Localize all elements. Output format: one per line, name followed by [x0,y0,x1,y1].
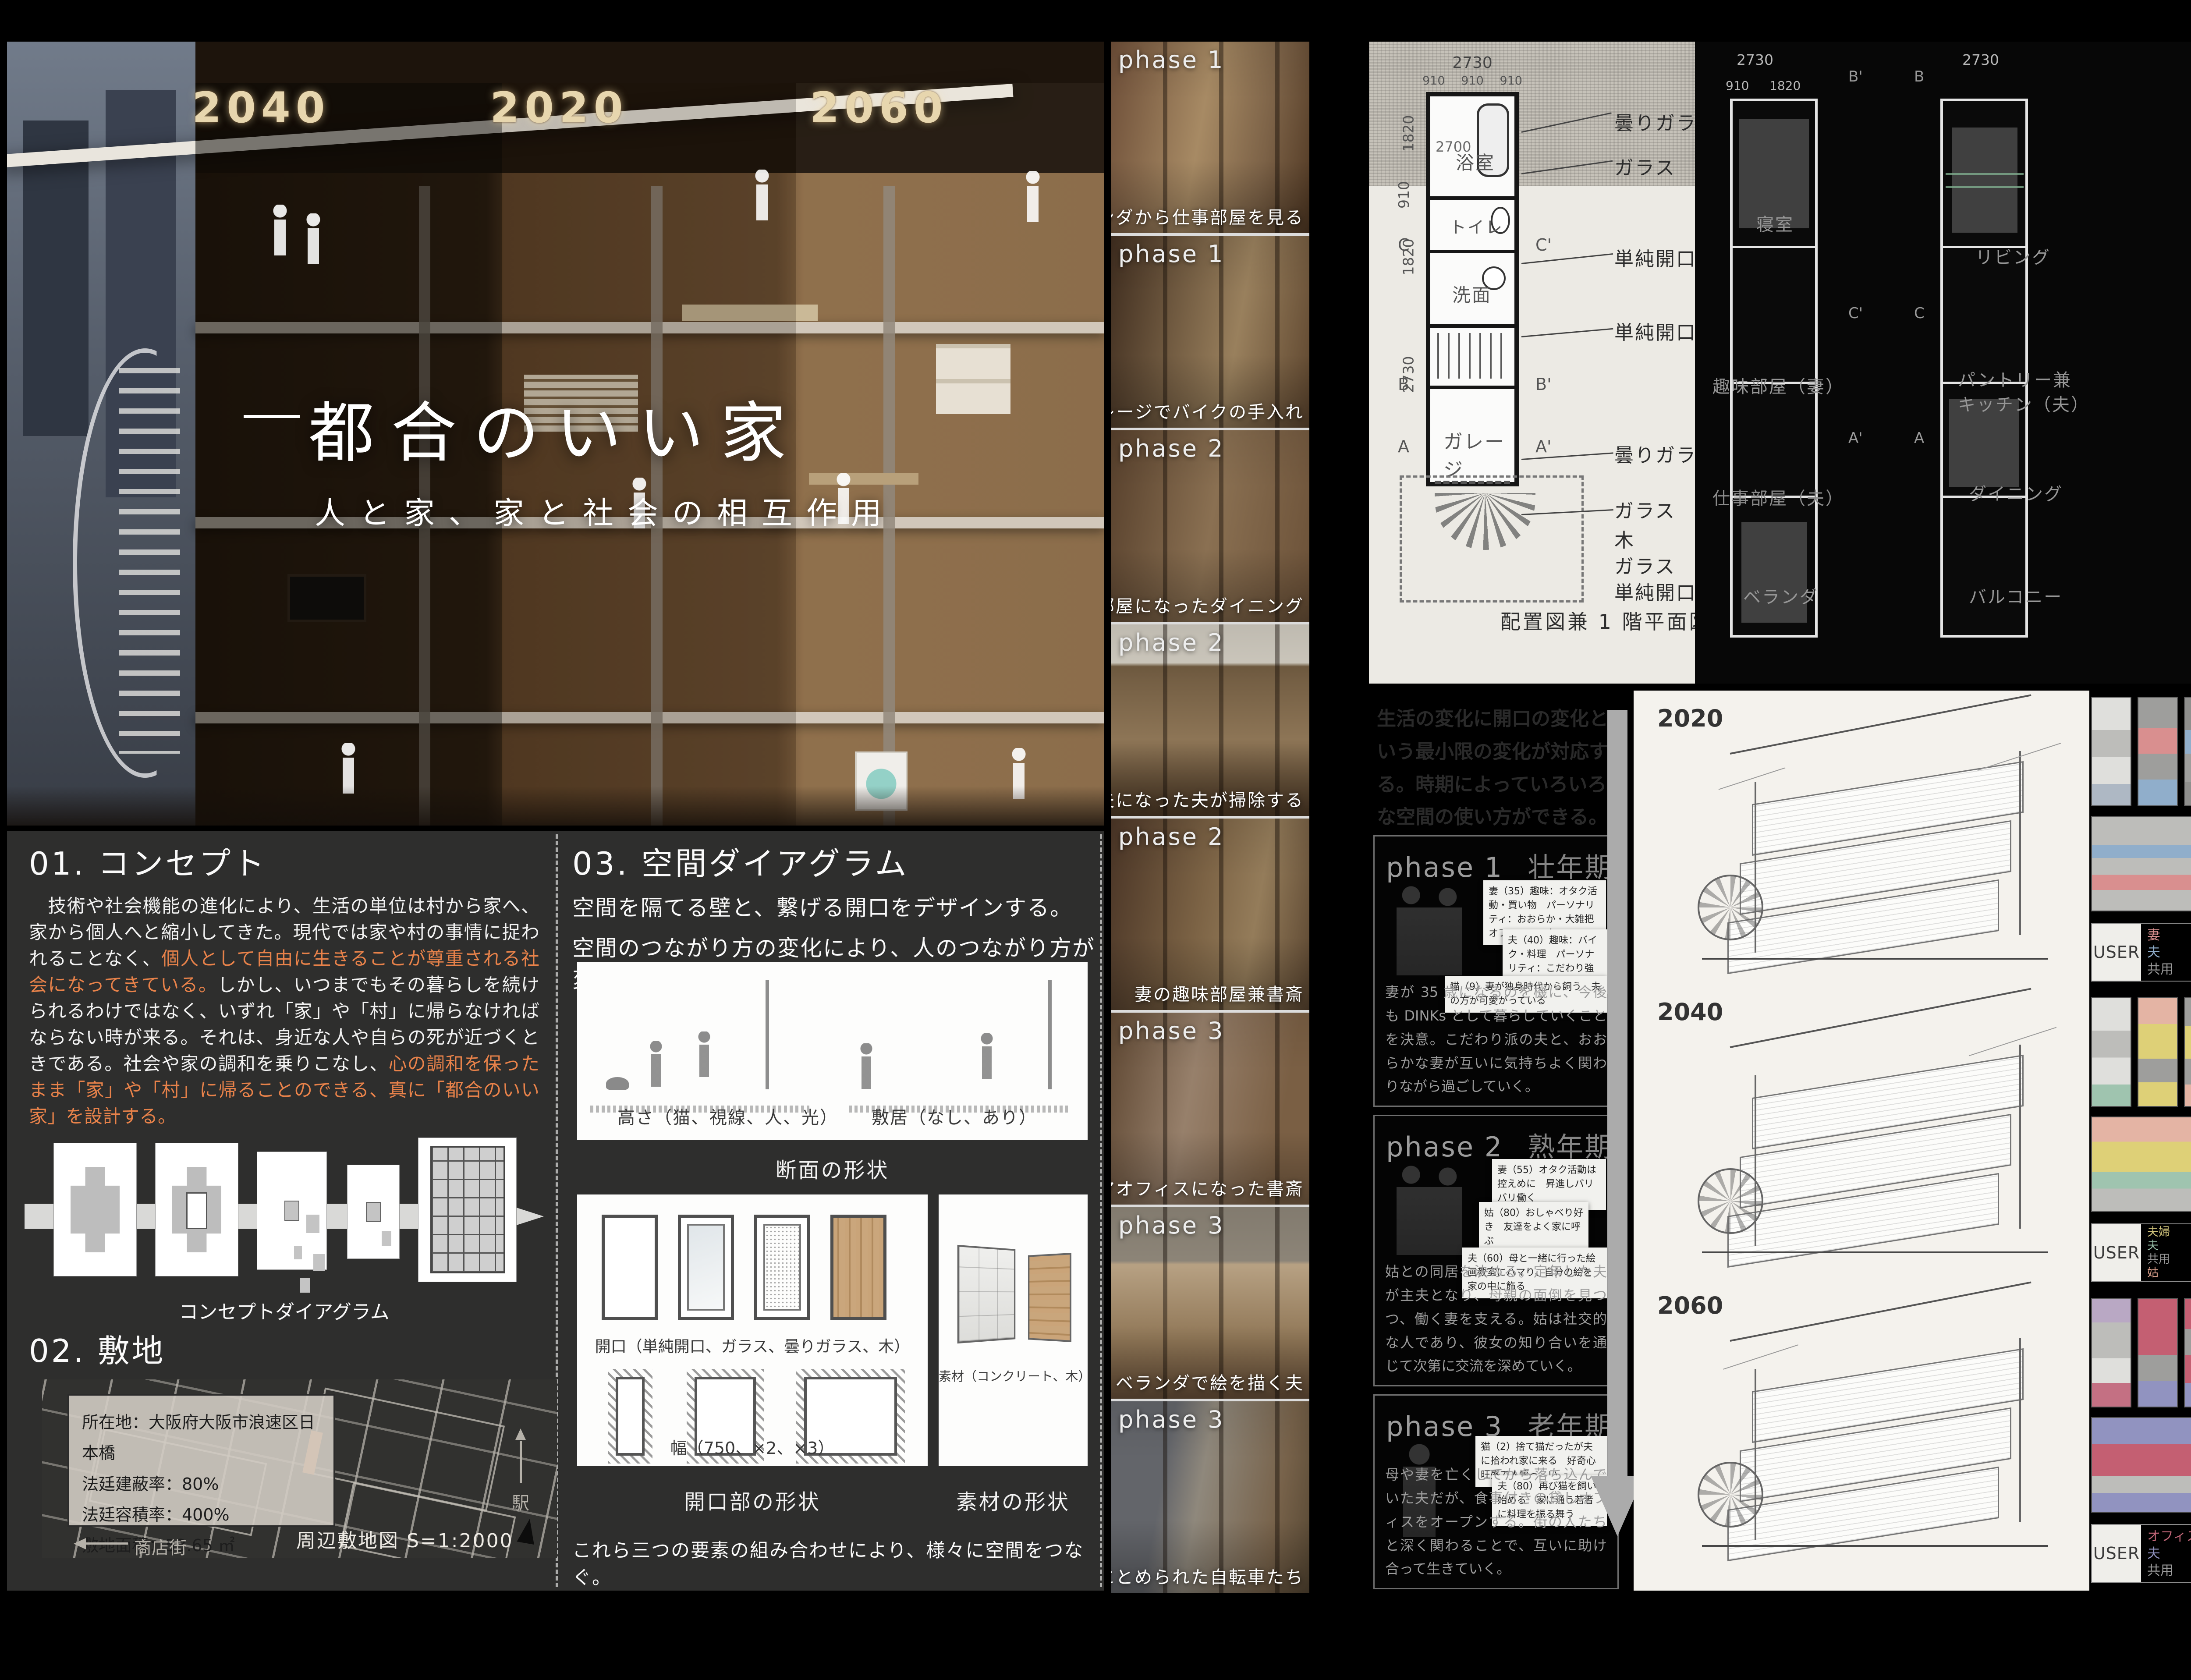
phase-story-column: 生活の変化に開口の変化という最小限の変化が対応する。時期によっていろいろな空間の… [1369,691,1623,1591]
dim-top: 2730 [1426,54,1519,72]
room-label-2f: 趣味部屋（妻） [1712,372,1844,398]
phase-label: phase 2 [1118,435,1224,462]
phase-label: phase 1 [1386,851,1503,883]
section-marker: C [1398,235,1410,255]
phase-label: phase 2 [1118,823,1224,851]
dim-left: 1820 [1400,115,1417,152]
phase2-heading: phase 2熟年期 [1386,1125,1613,1164]
plan-wall [1733,246,1815,248]
mini-section-thumb [2091,816,2191,911]
legend-shared: 共用 [2147,961,2191,978]
plan-wall [1430,196,1514,200]
phase-label: phase 2 [1386,1131,1503,1163]
poster-title: 都合のいい家 [308,380,803,475]
mini-plan-thumb [2184,697,2191,806]
hero-fade [7,786,1104,826]
site-heading: 02. 敷地 [29,1325,165,1371]
column-line [2019,1045,2021,1229]
concept-diagram-caption: コンセプトダイアグラム [25,1296,544,1324]
couple-sketch [1388,885,1471,979]
phase-label: phase 3 [1118,1212,1224,1239]
user-legend-entries: 妻 夫 共用 [2141,924,2191,981]
room-label-garage: ガレージ [1443,426,1514,482]
spatial-intro-1: 空間を隔てる壁と、繋げる開口をデザインする。 [572,890,1073,922]
room-label-3f: リビング [1975,243,2051,269]
user-legend-box: USER 妻 夫 共用 [2091,923,2191,982]
station-label: 駅 [512,1489,529,1514]
character-note: 姑（80）おしゃべり好き 友達をよく家に呼ぶ [1479,1202,1588,1253]
plan-core [186,1192,207,1229]
mini-plan-thumb [2091,697,2131,806]
plan-blob [172,1167,221,1252]
annotation-leader [1969,1027,2056,1056]
room-label-2f: 寝室 [1756,210,1794,236]
opening-type-label: ガラス [1614,495,1676,523]
axon-2040: 2040 [1647,993,2076,1273]
opening-type-label: 単純開口 [1614,243,1697,271]
leader-line [1521,253,1613,264]
dim-top-3f: 2730 [1962,51,1999,68]
model-photo-strip: phase 1ベランダから仕事部屋を見る phase 1ガレージでバイクの手入れ… [1111,42,1309,1593]
room-label-3f: ダイニング [1969,480,2063,505]
site-coverage: 法廷建蔽率：80% [82,1469,320,1499]
year-label-2060: 2060 [765,83,993,132]
ground-line [1702,1251,2048,1253]
room-label-3f: パントリー兼 [1958,366,2072,391]
time-overlay-2060 [796,83,1104,826]
stage-label: 熟年期 [1528,1131,1613,1163]
roof-line [1730,694,2031,754]
figure-sketch [647,1041,665,1088]
mini-plan-thumb [2091,1298,2131,1407]
width-caption: 幅（750、×2、×3） [577,1435,928,1459]
material-caption: 素材（コンクリート、木） [939,1366,1088,1385]
section-marker: C' [1848,305,1863,322]
photo-caption: 母の部屋になったダイニング [1111,592,1304,617]
phase-label: phase 2 [1118,629,1224,656]
site-map: 所在地：大阪府大阪市浪速区日本橋 法廷建蔽率：80% 法廷容積率：400% 敷地… [42,1379,557,1558]
annotation-leader [1723,1344,1798,1370]
legend-husband: 夫 [2147,944,2191,961]
wall-post-sketch [1048,980,1052,1089]
scattered-units [284,1201,299,1221]
material-diagram-panel: 素材（コンクリート、木） [939,1194,1088,1466]
section-marker: B' [1535,375,1552,394]
legend-office: オフィス [2147,1528,2191,1545]
opening-plain [602,1215,658,1320]
mini-plan-thumb [2184,1298,2191,1407]
room-label-2f: 仕事部屋（夫） [1712,484,1844,510]
section-marker: A' [1535,437,1551,456]
user-legend-title: USER [2092,1525,2141,1582]
phase3-description: 母や妻を亡くしてから落ち込んでいた夫だが、食事付きの貸しオフィスをオープンする。… [1385,1463,1607,1581]
dim-left: 910 [1395,181,1412,209]
wall-post-sketch [766,980,769,1089]
room-label-3f: バルコニー [1969,583,2063,608]
phase-label: phase 3 [1118,1017,1224,1045]
legend-shared: 共用 [2147,1253,2191,1266]
dim-910: 910 [1461,74,1484,88]
room-label-wash: 洗面 [1452,280,1492,307]
axon-year-label: 2020 [1657,705,1723,732]
map-caption: 周辺敷地図 S=1:2000 [296,1525,514,1553]
legend-husband: 夫 [2147,1239,2191,1253]
user-legend-title: USER [2092,924,2141,981]
opening-type-label: 木 [1614,525,1635,553]
opening-type-label: ガラス [1614,551,1676,579]
axon-year-label: 2060 [1657,1292,1723,1319]
spiral-stair-sketch [1698,875,1763,940]
stage-label: 壮年期 [1528,851,1613,883]
person-silhouette [303,213,323,267]
column-line [2019,751,2021,935]
figure-sketch [858,1043,875,1091]
phase2-description: 姑との同居を決める。定年した夫が主夫となり、母親の面倒を見つつ、働く妻を支える。… [1385,1260,1607,1378]
stair-hatch [1437,333,1508,379]
model-photo: phase 3シェアオフィスになった書斎 [1111,1013,1309,1204]
concept-heading: 01. コンセプト [29,838,266,884]
axonometric-sheet: 2020 2040 [1634,691,2089,1591]
section-marker: C' [1535,235,1552,255]
section-marker: B' [1848,68,1863,85]
user-cluster-2020: USER 妻 夫 共用 [2091,697,2191,986]
diagram-step-aggregate [418,1138,517,1282]
model-photo: phase 1ガレージでバイクの手入れ [1111,236,1309,427]
photo-caption: ベランダから仕事部屋を見る [1111,203,1304,229]
photo-caption: ガレージでバイクの手入れ [1111,398,1304,423]
sill-caption: 敷居（なし、あり） [872,1103,1037,1129]
title-rule [244,415,300,418]
axon-year-label: 2040 [1657,998,1723,1026]
user-legend-title: USER [2092,1224,2141,1281]
user-legend-box: USER 夫婦 夫 共用 姑 [2091,1223,2191,1282]
spatial-footer: これら三つの要素の組み合わせにより、様々に空間をつなぐ。 [572,1535,1098,1590]
city-building [23,121,89,436]
family-sketch [1388,1164,1471,1258]
room-label-3f: キッチン（夫） [1958,390,2090,416]
model-photo: phase 2専業主夫になった夫が掃除する [1111,624,1309,816]
photo-caption: ガレージにとめられた自転車たち [1111,1563,1304,1588]
room-label-toilet: トイレ [1450,214,1503,238]
user-legend-box: USER オフィス 夫 共用 [2091,1524,2191,1583]
section-marker: A [1398,437,1409,456]
concrete-panel-sketch [957,1245,1016,1343]
arcade-label: 商店街 [134,1534,187,1558]
axon-2060: 2060 [1647,1287,2076,1567]
dim-sub-2f: 1820 [1769,78,1801,93]
opening-wood [830,1215,886,1320]
axon-drawing [1712,1317,2054,1554]
cat-sketch [606,1077,629,1090]
person-silhouette [752,170,772,223]
station-arrow-icon [515,1428,526,1440]
model-photo: phase 2妻の趣味部屋兼書斎 [1111,819,1309,1010]
figure-sketch [695,1031,713,1079]
timeline-arrow-shaft [1607,710,1627,1477]
photo-caption: シェアオフィスになった書斎 [1111,1175,1304,1200]
person-silhouette [1023,171,1043,224]
dim-top-2f: 2730 [1737,51,1773,68]
mini-plan-thumb [2184,997,2191,1107]
model-photo: phase 3ベランダで絵を描く夫 [1111,1207,1309,1399]
user-legend-entries: 夫婦 夫 共用 姑 [2141,1224,2191,1281]
phase-label: phase 1 [1118,240,1224,268]
opening-type-label: 単純開口 [1614,577,1697,605]
mosaic-plan [430,1146,505,1273]
plan-wall [1430,386,1514,389]
model-photo: phase 3ガレージにとめられた自転車たち [1111,1401,1309,1593]
axon-2020: 2020 [1647,699,2076,980]
plan-wall [1430,324,1514,328]
legend-wife: 妻 [2147,927,2191,944]
spatial-heading: 03. 空間ダイアグラム [572,838,909,884]
year-label-2040: 2040 [147,83,375,132]
concept-paragraph: 技術や社会機能の進化により、生活の単位は村から家へ、家から個人へと縮小してきた。… [29,893,539,1130]
axon-drawing [1712,1024,2054,1260]
leader-line [1521,328,1613,337]
model-photo: phase 1ベランダから仕事部屋を見る [1111,42,1309,233]
mini-plan-thumb [2091,997,2131,1107]
section-shape-caption: 断面の形状 [577,1153,1088,1184]
legend-couple: 夫婦 [2147,1226,2191,1239]
wood-panel-sketch [1028,1253,1071,1342]
year-label-2020: 2020 [445,83,673,132]
axon-drawing [1712,730,2054,967]
person-silhouette [270,205,290,258]
column-line [2019,1338,2021,1522]
spiral-stair-sketch [1698,1168,1763,1234]
mini-plan-thumb [2138,1298,2178,1407]
spiral-stair-sketch [1698,1462,1763,1528]
phase3-box: phase 3老年期 猫（2）捨て猫だったが夫に拾われ家に来る 好奇心旺盛で人懐… [1373,1394,1619,1589]
user-cluster-2060: USER オフィス 夫 共用 [2091,1298,2191,1587]
ground-line [1702,1545,2048,1547]
phase-label: phase 3 [1118,1406,1224,1433]
room-label-2f: ベランダ [1743,583,1819,608]
dim-910: 910 [1422,74,1445,88]
phase-label: phase 1 [1118,46,1224,74]
dim-subdivisions: 910 910 910 [1422,74,1522,88]
opening-type-label: ガラス [1614,152,1676,180]
mini-section-thumb [2091,1116,2191,1212]
annotation-leader [1719,767,1786,790]
phase1-box: phase 1壮年期 妻（35）趣味：オタク活動・買い物 パーソナリティ：おおら… [1373,835,1619,1107]
presentation-board: 2040 2020 2060 都合のいい家 人と家、家と社会の相互作用 01. … [0,0,2191,1680]
legend-shared: 共用 [2147,1562,2191,1579]
mini-section-thumb [2091,1417,2191,1513]
site-info-box: 所在地：大阪府大阪市浪速区日本橋 法廷建蔽率：80% 法廷容積率：400% 敷地… [67,1394,335,1527]
plan-blob [71,1167,120,1252]
figure-sketch [978,1033,996,1081]
photo-caption: 専業主夫になった夫が掃除する [1111,786,1304,812]
phase1-heading: phase 1壮年期 [1386,845,1613,885]
material-shape-caption: 素材の形状 [939,1485,1088,1515]
diagram-step-village [53,1143,137,1276]
phase2-box: phase 2熟年期 妻（55）オタク活動は控えめに 昇進しバリバリ働く 姑（8… [1373,1115,1619,1386]
room-fill [1952,128,2017,233]
station-arrow-line [520,1441,522,1483]
plan-wall [1430,250,1514,253]
user-cluster-2040: USER 夫婦 夫 共用 姑 [2091,997,2191,1287]
height-caption: 高さ（猫、視線、人、光） [617,1103,838,1129]
roof-line [1730,988,2031,1048]
section-marker: B [1914,68,1924,85]
concept-diagram [25,1138,544,1291]
legend-husband: 夫 [2147,1545,2191,1562]
opening-diagram-panel: 開口（単純開口、ガラス、曇りガラス、木） 幅（750、×2、×3） [577,1194,928,1466]
hero-render: 2040 2020 2060 都合のいい家 人と家、家と社会の相互作用 [7,42,1104,826]
site-far: 法廷容積率：400% [82,1499,320,1530]
user-diagram-strip: USER 妻 夫 共用 USER 夫婦 夫 共用 姑 [2091,691,2191,1591]
diagram-step-individuals [257,1152,327,1270]
section-marker: B [1398,375,1409,394]
site-address: 所在地：大阪府大阪市浪速区日本橋 [82,1407,320,1469]
room-label-bath: 浴室 [1456,148,1495,175]
scattered-units [366,1202,381,1222]
poster-subtitle: 人と家、家と社会の相互作用 [315,489,896,533]
phase1-description: 妻が 35 歳になるのを機に、今後も DINKs として暮らしていくことを決意。… [1385,981,1607,1099]
phase-intro-text: 生活の変化に開口の変化という最小限の変化が対応する。時期によっていろいろな空間の… [1377,703,1616,834]
first-floor-plan: 2700 浴室 トイレ 洗面 ガレージ [1426,92,1519,486]
photo-caption: ベランダで絵を描く夫 [1116,1369,1304,1394]
upper-plans-panel: 2730 910 1820 2730 寝室 趣味部屋（妻） 仕事部屋（夫） ベラ… [1695,42,2191,684]
opening-type-label: 単純開口 [1614,317,1697,345]
arcade-arrow-line [84,1542,128,1545]
section-marker: A' [1848,429,1863,447]
floor-plan-sheet: 2730 910 910 910 1820 910 1820 2730 2700… [1369,42,2191,684]
opening-caption: 開口（単純開口、ガラス、曇りガラス、木） [577,1334,928,1357]
section-marker: C [1914,305,1925,322]
second-floor-plan [1730,99,1818,638]
photo-caption: 妻の趣味部屋兼書斎 [1134,980,1304,1006]
user-legend-entries: オフィス 夫 共用 [2141,1525,2191,1582]
diagram-step-house [155,1143,238,1276]
left-text-panel: 01. コンセプト 技術や社会機能の進化により、生活の単位は村から家へ、家から個… [7,831,1104,1591]
model-photo: phase 2母の部屋になったダイニング [1111,430,1309,622]
section-diagram-panel: 高さ（猫、視線、人、光） 敷居（なし、あり） [577,962,1088,1140]
mini-plan-thumb [2138,697,2178,806]
section-marker: A [1914,429,1924,447]
roof-line [1730,1281,2031,1341]
mini-plan-thumb [2138,997,2178,1107]
highlight-line [1946,186,2024,188]
dim-910: 910 [1500,74,1522,88]
diagram-step-unit [347,1165,400,1259]
ground-line [1702,958,2048,960]
dim-sub-2f: 910 [1726,78,1749,93]
highlight-line [1946,173,2024,175]
legend-mother-in-law: 姑 [2147,1266,2191,1280]
opening-shape-caption: 開口部の形状 [577,1485,928,1515]
opening-glass [678,1215,734,1320]
opening-frosted [754,1215,810,1320]
